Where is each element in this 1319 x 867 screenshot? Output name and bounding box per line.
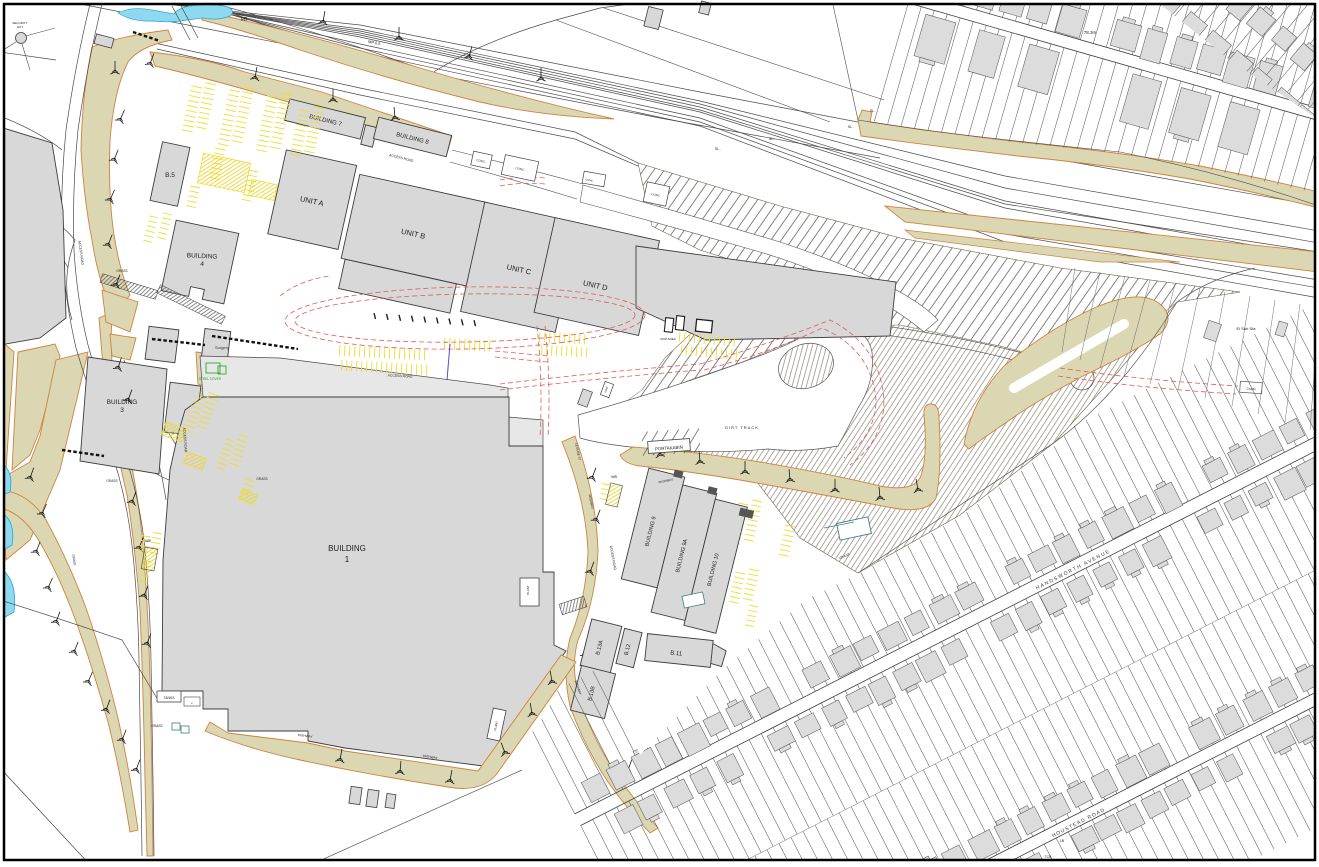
- svg-text:DIRT TRACK: DIRT TRACK: [725, 425, 759, 430]
- svg-text:TANKS: TANKS: [163, 696, 175, 700]
- svg-text:GRASS: GRASS: [116, 269, 127, 273]
- svg-text:B.5: B.5: [165, 172, 175, 179]
- svg-text:GRASS: GRASS: [256, 477, 267, 481]
- svg-text:GRASS: GRASS: [106, 479, 117, 483]
- svg-text:SL .: SL .: [715, 147, 721, 151]
- svg-text:BUILDING: BUILDING: [328, 544, 366, 553]
- svg-text:SL .: SL .: [870, 109, 876, 113]
- svg-text:3: 3: [120, 407, 124, 414]
- svg-text:PLANT: PLANT: [526, 585, 530, 595]
- svg-text:El Sub Sta: El Sub Sta: [1237, 326, 1257, 331]
- svg-text:FB: FB: [241, 17, 248, 23]
- svg-text:CABIN: CABIN: [1246, 387, 1255, 392]
- svg-text:HUT: HUT: [17, 25, 23, 29]
- svg-text:1: 1: [345, 555, 350, 564]
- svg-text:SL .: SL .: [769, 137, 775, 141]
- svg-text:SKIP AREA: SKIP AREA: [660, 337, 676, 341]
- svg-text:WB: WB: [611, 475, 617, 479]
- svg-text:BUILDING: BUILDING: [107, 399, 138, 406]
- svg-text:STEEL COVER: STEEL COVER: [199, 377, 222, 381]
- svg-text:GRASS: GRASS: [151, 724, 162, 728]
- svg-text:LB: LB: [1060, 839, 1065, 843]
- svg-text:78.3m: 78.3m: [1084, 30, 1097, 35]
- svg-text:Surgery: Surgery: [215, 345, 229, 350]
- svg-text:TCB: TCB: [1045, 855, 1053, 859]
- svg-text:WB: WB: [145, 539, 151, 543]
- svg-text:SL .: SL .: [848, 125, 854, 129]
